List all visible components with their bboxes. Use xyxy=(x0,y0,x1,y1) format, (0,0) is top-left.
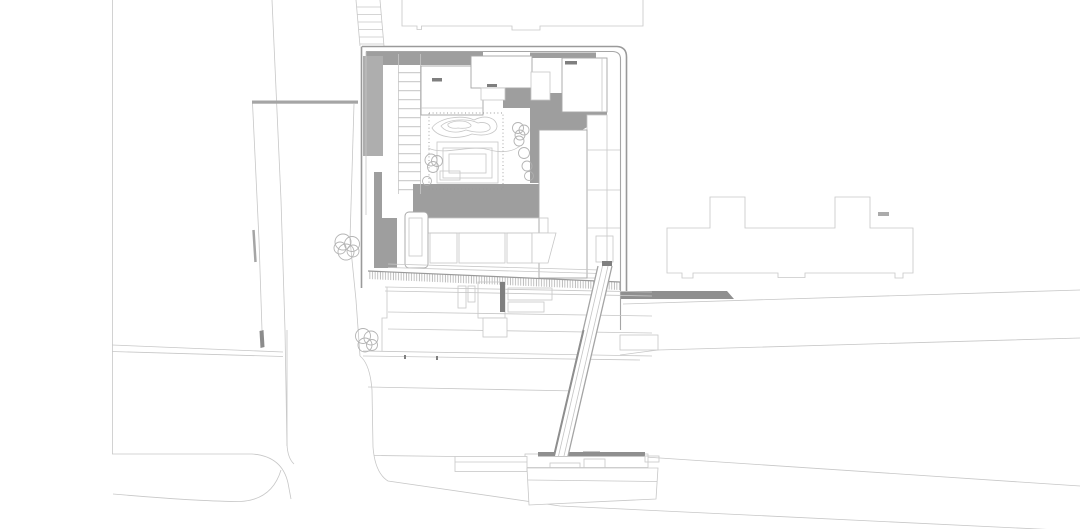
sidewalk-lines xyxy=(112,345,283,357)
shadow-top-band-east xyxy=(530,53,596,59)
east-platform-step xyxy=(620,335,658,350)
corner-curve-inner xyxy=(287,330,294,464)
approach-curb xyxy=(350,104,360,356)
street-east-curb xyxy=(272,0,287,446)
site-plan-drawing xyxy=(0,0,1080,529)
wall-sliver xyxy=(260,330,265,348)
lower-promenade-line xyxy=(368,387,577,391)
roof-plate-3 xyxy=(531,72,550,100)
roof-plate-4 xyxy=(562,58,607,112)
stair-landing xyxy=(483,318,507,337)
shoreline xyxy=(360,356,1080,529)
gangway-dark-cap xyxy=(583,452,600,456)
roof-plate-2 xyxy=(471,56,532,88)
corner-curve-south xyxy=(113,470,281,502)
roof-vent-mark xyxy=(878,212,889,216)
stair-core xyxy=(405,212,428,268)
figure xyxy=(436,356,438,360)
corner-curve-outer xyxy=(112,454,291,499)
retaining-wall-bar xyxy=(252,101,358,104)
pier-west-strip xyxy=(455,457,527,472)
east-quay-line-lower xyxy=(620,338,1080,355)
west-stair-strip xyxy=(398,54,421,194)
waterfront-line xyxy=(645,457,1080,486)
site-plan-canvas xyxy=(0,0,1080,529)
quay-edge-west xyxy=(374,456,455,457)
terraced-steps xyxy=(363,282,652,391)
shadow-top-band-west xyxy=(366,52,483,65)
roof-plate-2-tab xyxy=(481,88,505,100)
street-steps xyxy=(356,0,384,46)
shadow-arm xyxy=(530,130,539,183)
boundary-wall-segment xyxy=(254,230,256,262)
neighbor-building-north xyxy=(402,0,643,30)
plot-boundary-west xyxy=(253,103,263,330)
pontoon xyxy=(527,468,658,505)
neighbor-building-east xyxy=(667,197,913,278)
figure xyxy=(404,355,406,359)
terrace-west-edge xyxy=(382,287,387,351)
waterfront-pier xyxy=(455,452,659,506)
east-corridor xyxy=(587,115,607,278)
tree xyxy=(334,234,360,260)
stair-shadow-bar xyxy=(500,282,505,312)
sea-wall-bar xyxy=(621,291,734,299)
